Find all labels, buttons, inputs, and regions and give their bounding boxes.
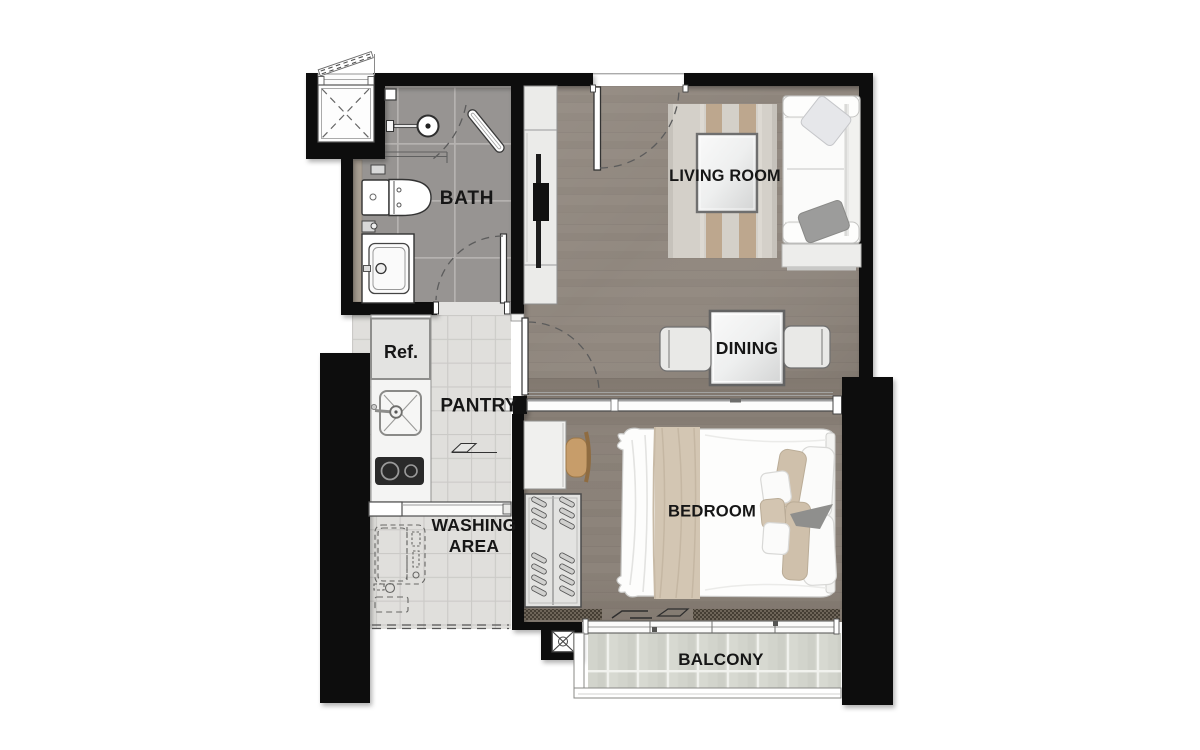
svg-text:BEDROOM: BEDROOM — [668, 502, 756, 521]
svg-text:BALCONY: BALCONY — [678, 650, 764, 669]
svg-text:PANTRY: PANTRY — [440, 396, 517, 417]
svg-text:LIVING ROOM: LIVING ROOM — [669, 167, 781, 185]
svg-text:Ref.: Ref. — [384, 342, 418, 362]
svg-text:WASHING: WASHING — [431, 515, 516, 535]
svg-text:BATH: BATH — [440, 188, 495, 209]
svg-text:DINING: DINING — [716, 338, 778, 358]
svg-text:AREA: AREA — [449, 536, 500, 556]
